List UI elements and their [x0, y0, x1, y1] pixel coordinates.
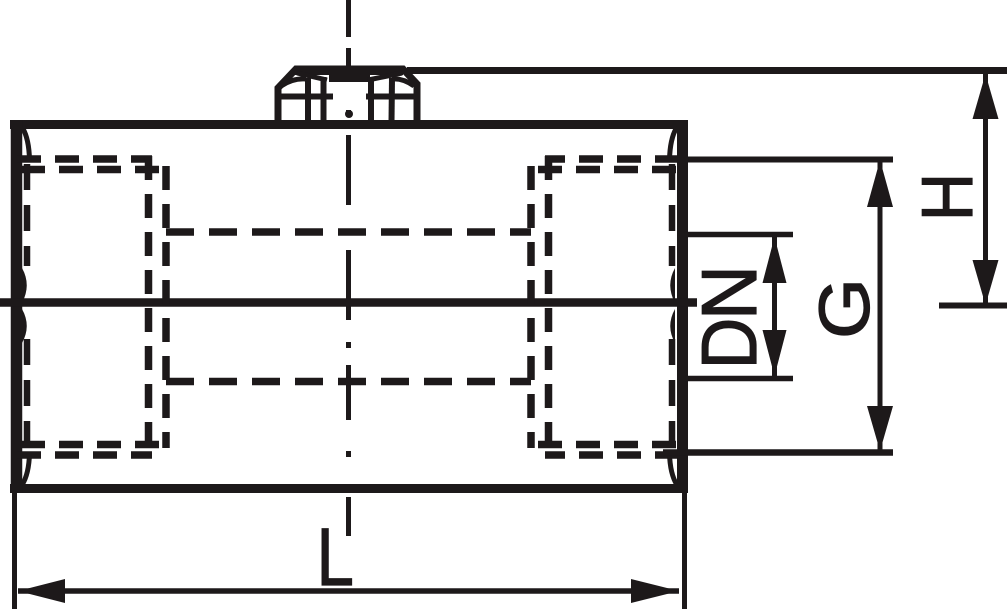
svg-text:N: N [686, 265, 773, 320]
svg-text:G: G [804, 278, 884, 339]
svg-text:H: H [907, 173, 988, 221]
svg-text:L: L [317, 511, 354, 603]
svg-text:D: D [685, 318, 772, 370]
